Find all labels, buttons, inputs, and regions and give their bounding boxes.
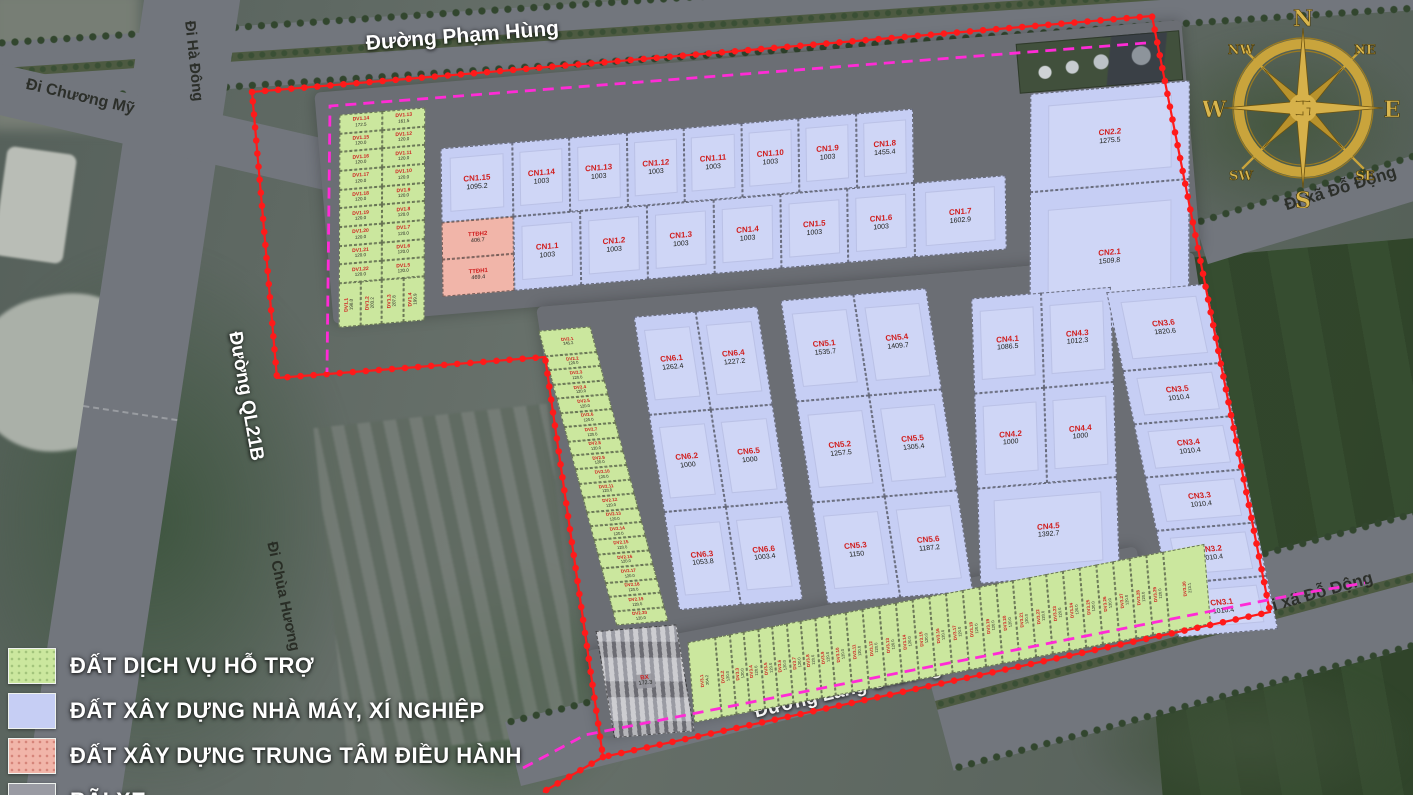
block-cn4: CN4.11086.5CN4.31012.3CN4.21000CN4.41000… bbox=[971, 287, 1119, 584]
lot-area: 120.0 bbox=[602, 489, 613, 494]
lot-area: 120.0 bbox=[579, 404, 590, 409]
lot-area: 120.0 bbox=[606, 503, 617, 508]
compass-rose-icon: N S W E NW NE SW SE bbox=[1203, 8, 1403, 208]
lot-area: 120.0 bbox=[825, 651, 830, 662]
dv1-left-column: DV1.14172.5DV1.15120.0DV1.16120.0DV1.171… bbox=[339, 111, 382, 283]
lot-area: 1227.2 bbox=[723, 358, 745, 367]
lot-area: 1602.9 bbox=[950, 216, 971, 225]
lot-CN4.4: CN4.41000 bbox=[1044, 382, 1117, 483]
lot-area: 1095.2 bbox=[466, 182, 487, 191]
lot-DV1.3: DV1.3207.8 bbox=[382, 278, 404, 324]
lot-area: 120.0 bbox=[1058, 607, 1063, 618]
lot-area: 1262.4 bbox=[662, 363, 684, 372]
lot-area: 469.4 bbox=[471, 275, 485, 282]
lot-area: 120.0 bbox=[587, 432, 598, 437]
lot-area: 120.0 bbox=[797, 656, 802, 667]
lot-CN5.5: CN5.51305.4 bbox=[869, 389, 957, 496]
lot-area: 1086.5 bbox=[997, 343, 1019, 352]
lot-area: 120.0 bbox=[957, 626, 962, 637]
lot-CN3.6: CN3.61820.6 bbox=[1106, 284, 1222, 371]
lot-area: 120.0 bbox=[398, 250, 409, 256]
lot-area: 120.0 bbox=[768, 662, 773, 673]
lot-area: 120.0 bbox=[594, 460, 605, 465]
lot-CN1.3: CN1.31003 bbox=[647, 200, 715, 280]
lot-area: 120.0 bbox=[1091, 600, 1096, 611]
legend: ĐẤT DỊCH VỤ HỖ TRỢ ĐẤT XÂY DỰNG NHÀ MÁY,… bbox=[8, 648, 522, 795]
lot-CN4.2: CN4.21000 bbox=[974, 388, 1047, 489]
lot-area: 1053.8 bbox=[692, 558, 714, 567]
lot-DV1.1: DV1.1198.0 bbox=[339, 282, 361, 328]
lot-area: 1003.4 bbox=[754, 553, 776, 562]
lot-area: 120.0 bbox=[1141, 591, 1146, 602]
dv1-right-column: DV1.13161.5DV1.12120.0DV1.11120.0DV1.101… bbox=[382, 108, 425, 280]
lot-area: 120.0 bbox=[355, 197, 366, 203]
lot-area: 1257.5 bbox=[830, 449, 852, 458]
lot-area: 172.3 bbox=[638, 681, 653, 688]
lot-area: 120.0 bbox=[398, 193, 409, 199]
lot-CN1.13: CN1.131003 bbox=[570, 133, 628, 212]
lot-area: 120.0 bbox=[782, 659, 787, 670]
lot-DV3.30: DV3.30213.1 bbox=[1163, 544, 1211, 632]
lot-CN3.5: CN3.51010.4 bbox=[1123, 363, 1234, 425]
lot-CN1.14: CN1.141003 bbox=[512, 138, 570, 217]
compass-n-label: N bbox=[1293, 8, 1313, 32]
lot-CN1.12: CN1.121003 bbox=[627, 128, 685, 207]
lot-CN4.3: CN4.31012.3 bbox=[1041, 287, 1114, 388]
lot-area: 199.9 bbox=[414, 293, 419, 305]
lot-CN3.4: CN3.41010.4 bbox=[1134, 416, 1245, 478]
lot-CN5.4: CN5.41409.7 bbox=[853, 288, 941, 395]
lot-DV1.2: DV1.2203.2 bbox=[360, 280, 382, 326]
lot-area: 120.0 bbox=[628, 588, 639, 593]
lot-CN2.2: CN2.21275.5 bbox=[1030, 80, 1190, 192]
lot-area: 406.7 bbox=[471, 238, 485, 245]
lot-area: 120.0 bbox=[398, 231, 409, 237]
lot-area: 1535.7 bbox=[814, 348, 836, 357]
lot-area: 120.0 bbox=[1041, 610, 1046, 621]
lot-area: 120.0 bbox=[398, 268, 409, 274]
lot-area: 120.0 bbox=[1074, 604, 1079, 615]
lot-CN4.1: CN4.11086.5 bbox=[971, 293, 1044, 394]
lot-area: 120.0 bbox=[907, 635, 912, 646]
lot-area: 120.0 bbox=[609, 517, 620, 522]
lot-DV1.4: DV1.4199.9 bbox=[403, 276, 425, 322]
lot-area: 120.0 bbox=[355, 253, 366, 259]
lot-area: 120.0 bbox=[624, 574, 635, 579]
lot-area: 1003 bbox=[534, 177, 550, 186]
lot-area: 207.8 bbox=[393, 295, 398, 307]
lot-area: 1003 bbox=[606, 245, 622, 254]
compass-ne-label: NE bbox=[1354, 43, 1376, 58]
compass-sw-label: SW bbox=[1229, 169, 1253, 184]
lot-area: 1012.3 bbox=[1067, 337, 1089, 346]
legend-item-ttdh: ĐẤT XÂY DỰNG TRUNG TÂM ĐIỀU HÀNH bbox=[8, 738, 522, 774]
legend-label-cn: ĐẤT XÂY DỰNG NHÀ MÁY, XÍ NGHIỆP bbox=[70, 698, 485, 724]
road-label-ql21b: Đường QL21B bbox=[223, 330, 267, 463]
lot-area: 120.0 bbox=[1008, 616, 1013, 627]
lot-CN1.8: CN1.81455.4 bbox=[856, 109, 914, 188]
lot-area: 120.0 bbox=[355, 178, 366, 184]
lot-area: 120.0 bbox=[754, 665, 759, 676]
lot-area: 120.0 bbox=[398, 137, 409, 143]
lot-area: 120.0 bbox=[857, 645, 862, 656]
lot-area: 1000 bbox=[680, 461, 697, 470]
lot-area: 1003 bbox=[539, 251, 555, 260]
lot-area: 1003 bbox=[820, 153, 836, 162]
lot-area: 1010.4 bbox=[1179, 446, 1202, 455]
lot-area: 1003 bbox=[763, 158, 779, 167]
lot-area: 1010.4 bbox=[1212, 606, 1235, 615]
lot-area: 1000 bbox=[1003, 438, 1019, 447]
compass-nw-label: NW bbox=[1228, 43, 1255, 58]
industrial-park-master-plan-map: Đường Phạm Hùng Đi Hà Đông Đi Chương Mỹ … bbox=[0, 0, 1413, 795]
lot-area: 1003 bbox=[873, 223, 889, 232]
lot-area: 1003 bbox=[673, 240, 689, 249]
lot-area: 203.2 bbox=[371, 297, 376, 309]
lot-area: 1409.7 bbox=[887, 341, 909, 350]
lot-area: 120.0 bbox=[1108, 597, 1113, 608]
lot-area: 120.0 bbox=[811, 654, 816, 665]
lot-area: 120.0 bbox=[355, 160, 366, 166]
lot-CN1.7: CN1.71602.9 bbox=[914, 175, 1007, 257]
lot-CN5.6: CN5.61187.2 bbox=[885, 490, 973, 597]
legend-swatch-bx bbox=[8, 783, 56, 795]
lot-area: 120.0 bbox=[568, 361, 579, 366]
lot-area: 120.0 bbox=[398, 212, 409, 218]
compass-se-label: SE bbox=[1355, 169, 1374, 184]
lot-CN3.3: CN3.31010.4 bbox=[1145, 469, 1256, 531]
lot-area: 120.0 bbox=[398, 175, 409, 181]
white-building-left bbox=[0, 146, 77, 265]
dv1-bottom-row: DV1.1198.0DV1.2203.2DV1.3207.8DV1.4199.9 bbox=[339, 276, 425, 327]
lot-CN1.9: CN1.91003 bbox=[798, 114, 856, 193]
lot-area: 120.0 bbox=[891, 639, 896, 650]
lot-area: 120.0 bbox=[740, 667, 745, 678]
lot-area: 120.0 bbox=[591, 446, 602, 451]
compass-w-label: W bbox=[1203, 97, 1227, 123]
lot-area: 204.2 bbox=[705, 674, 710, 685]
lot-TTĐH1: TTĐH1469.4 bbox=[442, 254, 514, 297]
lot-area: 1003 bbox=[591, 172, 607, 181]
lot-CN1.5: CN1.51003 bbox=[780, 189, 848, 269]
lot-area: 198.0 bbox=[350, 299, 355, 311]
legend-label-bx: BÃI XE bbox=[70, 788, 146, 795]
compass-s-label: S bbox=[1295, 188, 1311, 208]
lot-area: 120.0 bbox=[1125, 594, 1130, 605]
lot-area: 120.0 bbox=[572, 375, 583, 380]
lot-area: 120.0 bbox=[576, 389, 587, 394]
lot-area: 1000 bbox=[1073, 432, 1089, 441]
lot-area: 120.0 bbox=[355, 216, 366, 222]
lot-area: 120.0 bbox=[635, 616, 646, 621]
lot-area: 1000 bbox=[741, 456, 758, 465]
lot-area: 172.5 bbox=[355, 122, 366, 128]
lot-area: 1003 bbox=[705, 163, 721, 172]
lot-TTĐH2: TTĐH2406.7 bbox=[442, 217, 514, 260]
lot-area: 1010.4 bbox=[1190, 500, 1213, 509]
lot-area: 120.0 bbox=[841, 648, 846, 659]
legend-item-cn: ĐẤT XÂY DỰNG NHÀ MÁY, XÍ NGHIỆP bbox=[8, 693, 522, 729]
lot-area: 120.0 bbox=[613, 531, 624, 536]
lot-area: 1455.4 bbox=[874, 148, 895, 157]
lot-area: 120.0 bbox=[398, 156, 409, 162]
lot-area: 1305.4 bbox=[903, 443, 925, 452]
lot-CN1.2: CN1.21003 bbox=[580, 205, 648, 285]
lot-area: 1003 bbox=[648, 167, 664, 176]
lot-area: 1820.6 bbox=[1154, 327, 1177, 336]
lot-area: 120.0 bbox=[632, 602, 643, 607]
lot-area: 120.0 bbox=[924, 632, 929, 643]
lot-area: 120.0 bbox=[1024, 613, 1029, 624]
lot-area: 120.0 bbox=[617, 545, 628, 550]
legend-swatch-ttdh bbox=[8, 738, 56, 774]
lot-area: 120.0 bbox=[583, 418, 594, 423]
block-ttdh: TTĐH2406.7TTĐH1469.4 bbox=[442, 217, 515, 297]
lot-area: 1187.2 bbox=[918, 544, 940, 553]
legend-swatch-cn bbox=[8, 693, 56, 729]
lot-area: 1509.8 bbox=[1099, 256, 1120, 265]
lot-area: 120.0 bbox=[621, 559, 632, 564]
lot-area: 1392.7 bbox=[1038, 530, 1060, 539]
legend-label-ttdh: ĐẤT XÂY DỰNG TRUNG TÂM ĐIỀU HÀNH bbox=[70, 743, 522, 769]
lot-area: 161.5 bbox=[398, 119, 409, 125]
legend-item-dv: ĐẤT DỊCH VỤ HỖ TRỢ bbox=[8, 648, 522, 684]
lot-area: 1275.5 bbox=[1099, 136, 1120, 145]
legend-swatch-dv bbox=[8, 648, 56, 684]
lot-CN1.4: CN1.41003 bbox=[714, 194, 782, 274]
lot-CN1.15: CN1.151095.2 bbox=[441, 142, 514, 222]
lot-area: 120.0 bbox=[874, 642, 879, 653]
lot-area: 245.2 bbox=[563, 341, 574, 346]
lot-area: 120.0 bbox=[355, 141, 366, 147]
lot-area: 120.0 bbox=[355, 272, 366, 278]
lot-area: 1003 bbox=[807, 228, 823, 237]
lot-CN1.11: CN1.111003 bbox=[684, 123, 742, 202]
lot-CN1.10: CN1.101003 bbox=[741, 118, 799, 197]
legend-item-bx: BÃI XE bbox=[8, 783, 522, 795]
lot-area: 120.0 bbox=[991, 619, 996, 630]
lot-area: 120.0 bbox=[725, 670, 730, 681]
block-dv1: DV1.14172.5DV1.15120.0DV1.16120.0DV1.171… bbox=[339, 108, 425, 328]
lot-area: 213.1 bbox=[1187, 582, 1192, 593]
lot-CN1.6: CN1.61003 bbox=[847, 183, 915, 263]
lot-area: 120.0 bbox=[1158, 588, 1163, 599]
lot-CN1.1: CN1.11003 bbox=[513, 211, 581, 291]
compass-e-label: E bbox=[1384, 97, 1401, 123]
lot-area: 1010.4 bbox=[1168, 393, 1191, 402]
lot-area: 120.0 bbox=[355, 235, 366, 241]
lot-area: 1150 bbox=[849, 550, 865, 559]
legend-label-dv: ĐẤT DỊCH VỤ HỖ TRỢ bbox=[70, 653, 314, 679]
lane-marking bbox=[83, 405, 177, 421]
lot-area: 120.0 bbox=[941, 629, 946, 640]
lot-area: 120.0 bbox=[598, 474, 609, 479]
lot-area: 1003 bbox=[740, 234, 756, 243]
lot-area: 120.0 bbox=[974, 623, 979, 634]
